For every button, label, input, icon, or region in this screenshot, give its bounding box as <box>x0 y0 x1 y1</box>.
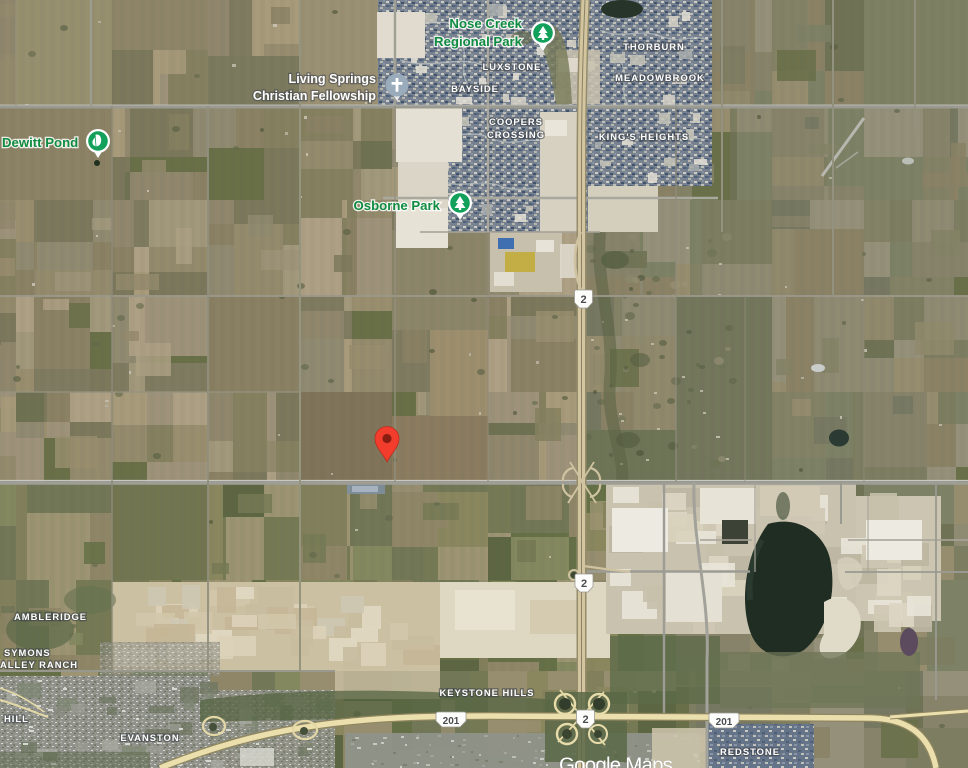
svg-text:201: 201 <box>443 716 460 727</box>
svg-text:THORBURN: THORBURN <box>623 41 685 52</box>
svg-text:KEYSTONE HILLS: KEYSTONE HILLS <box>439 687 534 698</box>
svg-text:BAYSIDE: BAYSIDE <box>451 83 499 94</box>
svg-text:AMBLERIDGE: AMBLERIDGE <box>14 611 87 622</box>
svg-text:SYMONS: SYMONS <box>4 647 51 658</box>
svg-text:MEADOWBROOK: MEADOWBROOK <box>615 72 705 83</box>
svg-text:2: 2 <box>580 294 586 306</box>
svg-text:REDSTONE: REDSTONE <box>720 746 780 757</box>
svg-text:Christian Fellowship: Christian Fellowship <box>253 89 376 103</box>
svg-text:Dewitt Pond: Dewitt Pond <box>2 135 78 150</box>
svg-text:Living Springs: Living Springs <box>289 72 376 86</box>
svg-text:Nose Creek: Nose Creek <box>449 16 522 31</box>
svg-text:COOPERS: COOPERS <box>489 116 543 127</box>
svg-text:HILL: HILL <box>4 713 29 724</box>
svg-text:ALLEY RANCH: ALLEY RANCH <box>0 659 78 670</box>
svg-text:KING'S HEIGHTS: KING'S HEIGHTS <box>599 131 689 142</box>
svg-text:EVANSTON: EVANSTON <box>120 732 179 743</box>
svg-text:Regional Park: Regional Park <box>434 34 523 49</box>
svg-text:CROSSING: CROSSING <box>487 129 545 140</box>
svg-text:Osborne Park: Osborne Park <box>354 198 441 213</box>
svg-text:Google Maps: Google Maps <box>559 754 673 768</box>
svg-text:2: 2 <box>582 714 588 726</box>
svg-text:201: 201 <box>716 717 733 728</box>
svg-text:LUXSTONE: LUXSTONE <box>483 61 542 72</box>
svg-text:2: 2 <box>581 578 587 590</box>
